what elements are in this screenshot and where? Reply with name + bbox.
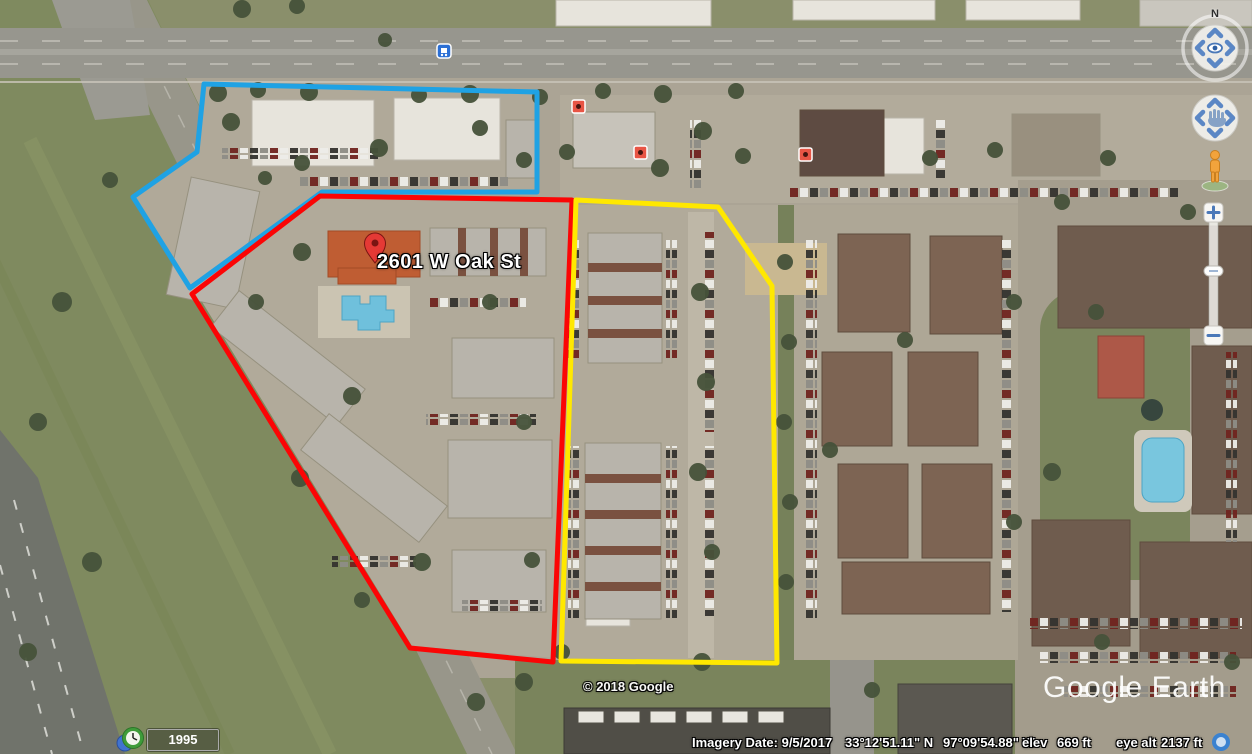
status-eye-alt-label: eye alt — [1116, 735, 1156, 750]
zoom-control — [1204, 203, 1223, 345]
eye-icon — [1208, 44, 1222, 53]
pegman-icon — [1211, 151, 1220, 183]
status-imagery-date: Imagery Date: 9/5/2017 — [692, 735, 832, 750]
move-joystick[interactable] — [1192, 95, 1238, 141]
placemark-label[interactable]: 2601 W Oak St — [377, 251, 521, 274]
timeline-year-badge[interactable]: 1995 — [147, 729, 219, 751]
pegman-control[interactable] — [1202, 151, 1228, 192]
compass-north-label: N — [1211, 8, 1219, 20]
google-earth-viewport: 2601 W Oak St © 2018 Google Google Earth… — [0, 0, 1252, 754]
google-earth-watermark: Google Earth — [1043, 671, 1226, 705]
pond — [1141, 399, 1163, 421]
status-elevation: 669 ft — [1057, 735, 1091, 750]
streaming-indicator-icon — [1212, 733, 1230, 751]
status-elev-label: elev — [1022, 735, 1047, 750]
navigation-controls: N — [1175, 2, 1252, 354]
status-latitude: 33°12'51.11" N — [845, 735, 933, 750]
look-joystick[interactable]: N — [1183, 8, 1247, 80]
sport-court — [1098, 336, 1144, 398]
satellite-map[interactable] — [0, 0, 1252, 754]
copyright-text: © 2018 Google — [583, 679, 674, 694]
pool-right — [1142, 438, 1184, 502]
bus-stop-icon[interactable] — [437, 44, 451, 58]
status-eye-altitude: 2137 ft — [1161, 735, 1202, 750]
